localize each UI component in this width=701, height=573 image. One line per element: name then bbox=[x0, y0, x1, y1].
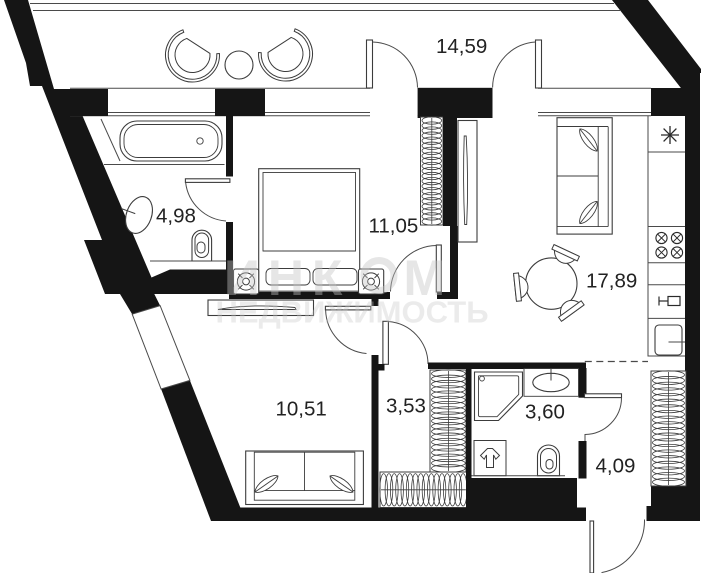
svg-text:3,60: 3,60 bbox=[525, 401, 565, 424]
svg-text:17,89: 17,89 bbox=[586, 270, 637, 293]
svg-text:11,05: 11,05 bbox=[369, 215, 419, 238]
svg-text:10,51: 10,51 bbox=[276, 398, 327, 421]
svg-text:4,09: 4,09 bbox=[596, 455, 636, 478]
svg-text:4,98: 4,98 bbox=[156, 205, 196, 228]
svg-text:НЕДВИЖИМОСТЬ: НЕДВИЖИМОСТЬ bbox=[216, 295, 489, 330]
svg-text:3,53: 3,53 bbox=[386, 395, 426, 418]
svg-text:14,59: 14,59 bbox=[436, 35, 487, 58]
